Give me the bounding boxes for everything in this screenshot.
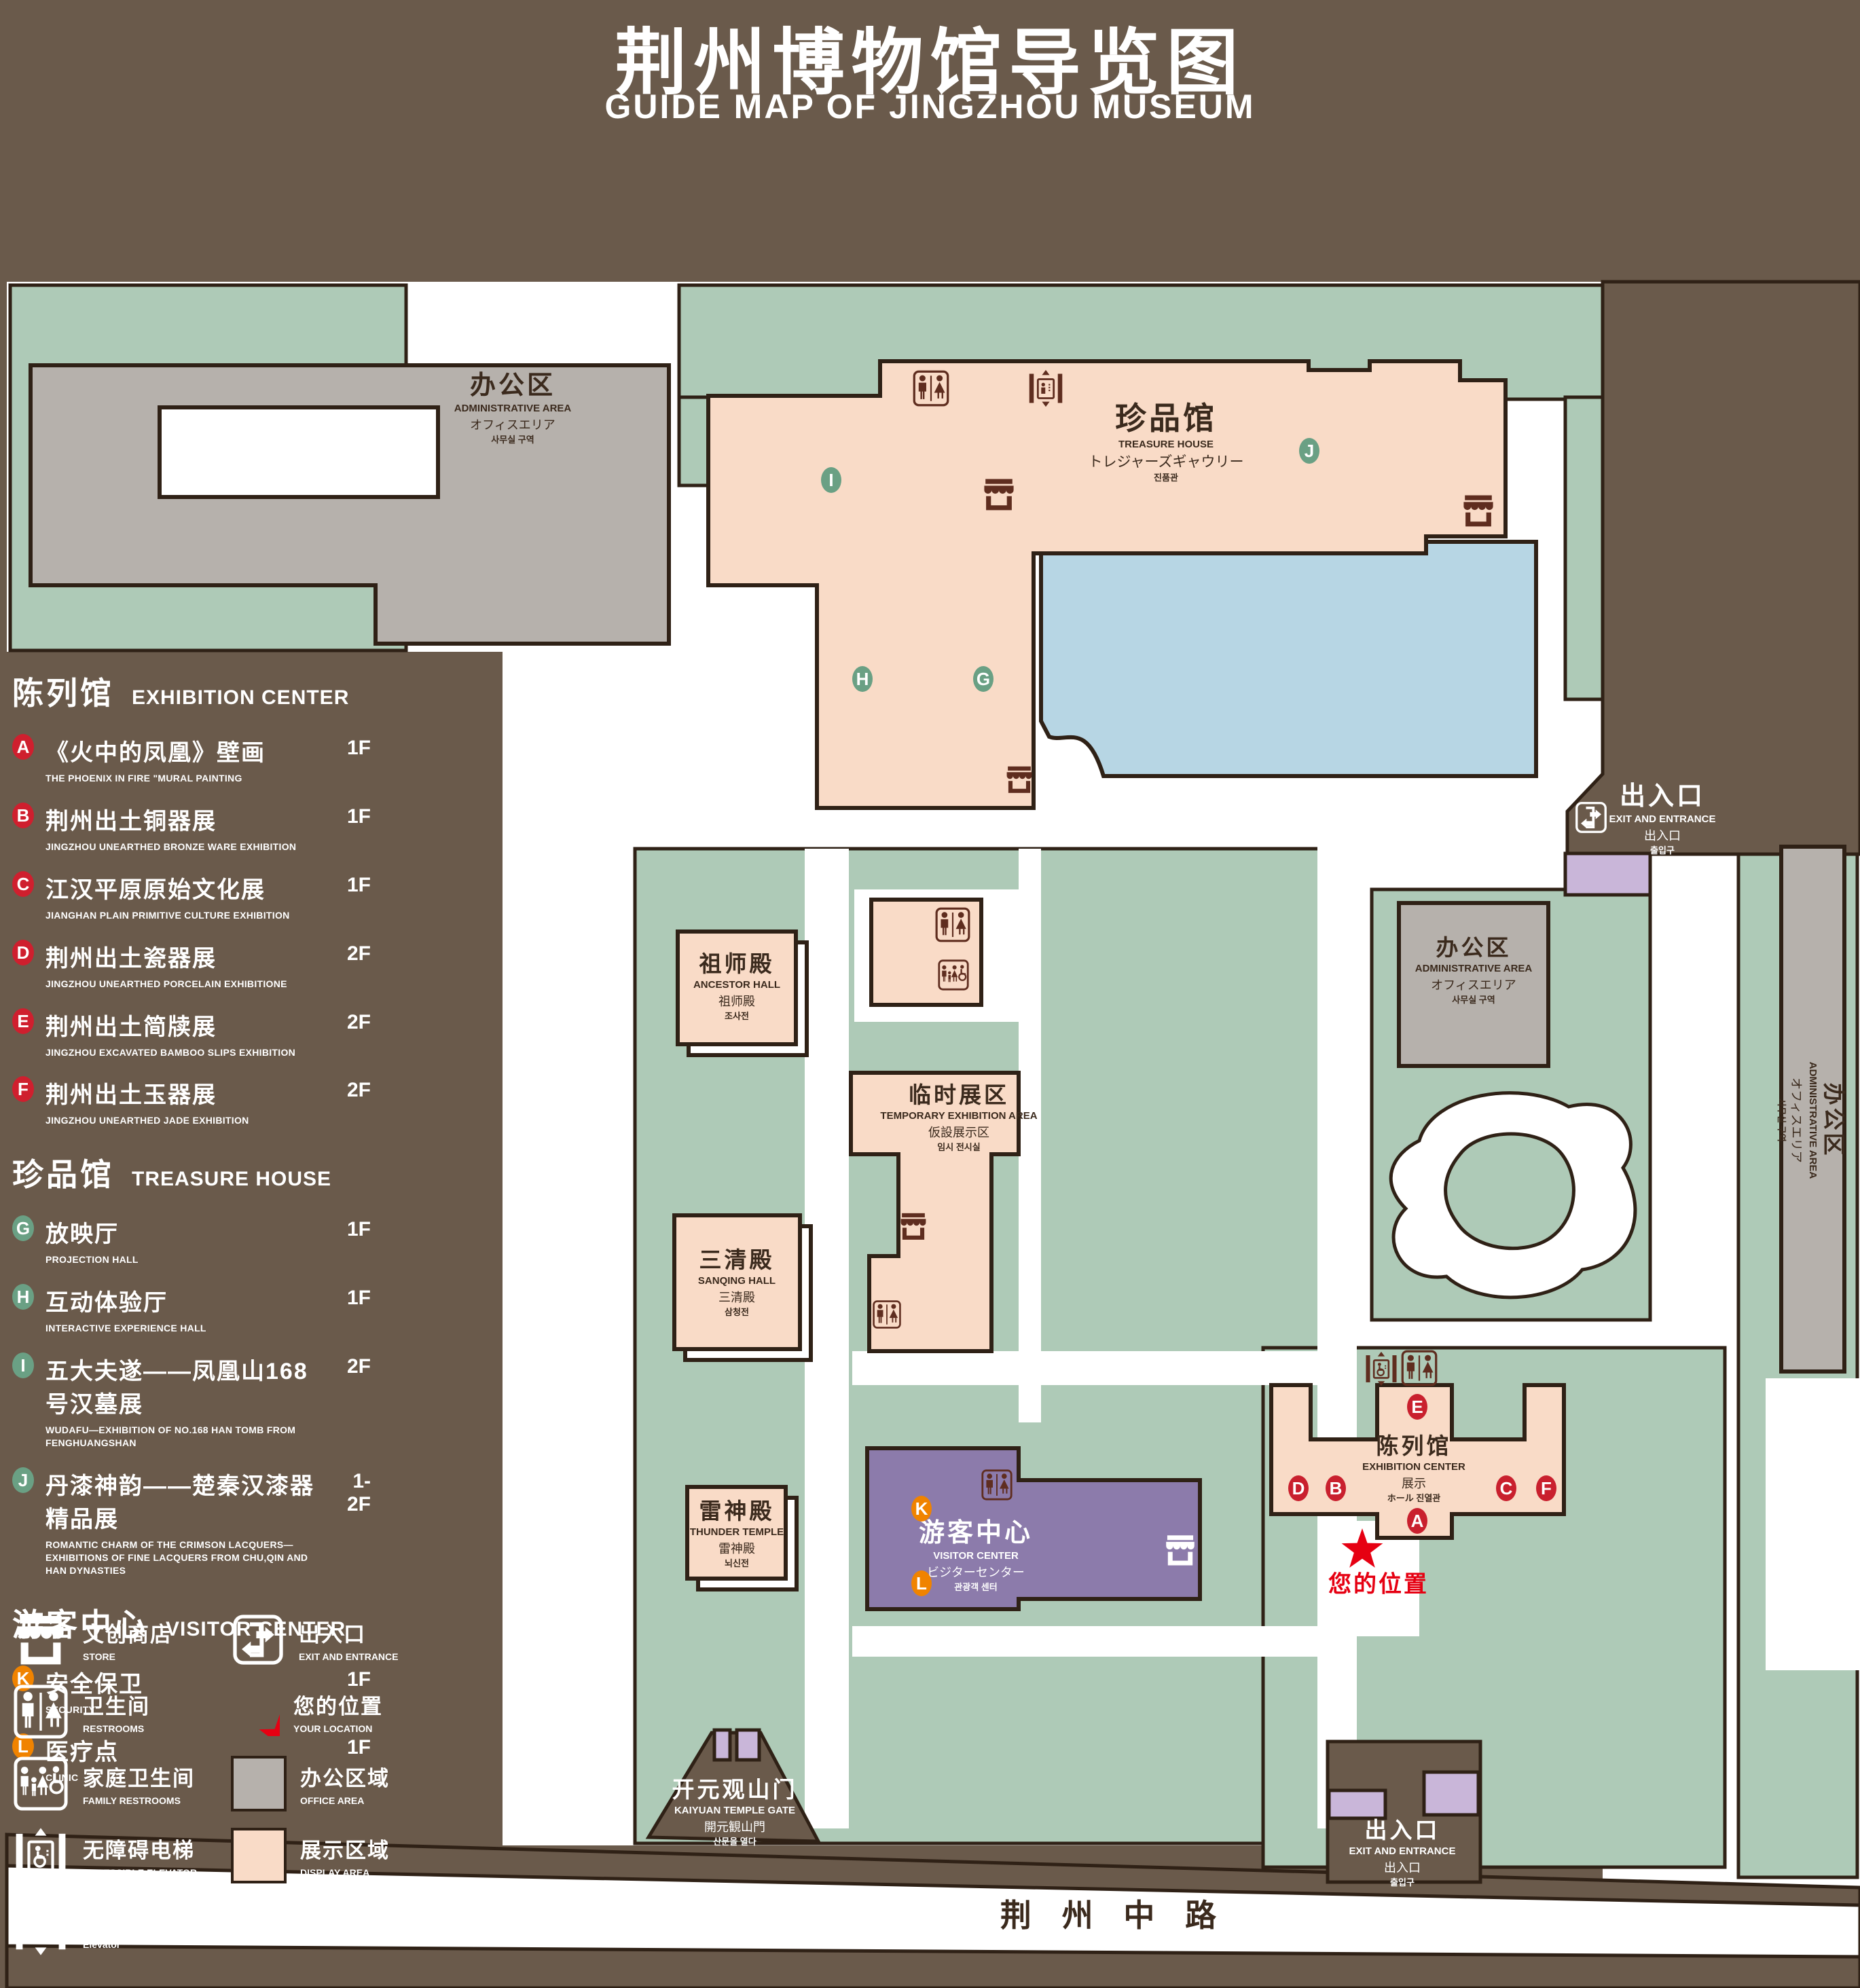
accessible-elevator-icon [12, 1827, 69, 1884]
legend-item-j: J 丹漆神韵——楚秦汉漆器精品展 ROMANTIC CHARM OF THE C… [12, 1467, 371, 1577]
symbol-zh: 出入口 [299, 1617, 399, 1648]
item-floor: 2F [331, 1076, 371, 1102]
path-visitor-south [852, 1626, 1355, 1657]
item-text: 荆州出土瓷器展 JINGZHOU UNEARTHED PORCELAIN EXH… [45, 940, 331, 991]
map-marker-d: D [1288, 1475, 1309, 1501]
label-en: EXIT AND ENTRANCE [1609, 813, 1716, 826]
item-text: 丹漆神韵——楚秦汉漆器精品展 ROMANTIC CHARM OF THE CRI… [45, 1467, 331, 1577]
pad-south-exit-left [1329, 1790, 1385, 1818]
label-en: EXIT AND ENTRANCE [1349, 1845, 1456, 1858]
label-ja: オフィスエリア [454, 418, 572, 432]
marker-badge-i: I [12, 1352, 34, 1378]
symbol-en: OFFICE AREA [300, 1795, 390, 1806]
symbol-zh: 无障碍电梯 [83, 1833, 197, 1864]
map-marker-l: L [911, 1570, 932, 1596]
label-ko: 삼청전 [698, 1306, 776, 1317]
label-en: ADMINISTRATIVE AREA [1806, 1062, 1819, 1179]
symbol-zh: 文创商店 [83, 1617, 172, 1648]
map-marker-k: K [911, 1496, 932, 1522]
symbol-zh: 办公区域 [300, 1761, 390, 1792]
item-en: JIANGHAN PLAIN PRIMITIVE CULTURE EXHIBIT… [45, 909, 331, 922]
label-south-exit: 出入口 EXIT AND ENTRANCE 出入口 출입구 [1349, 1817, 1456, 1888]
item-text: 荆州出土玉器展 JINGZHOU UNEARTHED JADE EXHIBITI… [45, 1076, 331, 1127]
label-ko: ホール 진열관 [1362, 1492, 1465, 1503]
road-label: 荆 州 中 路 [1000, 1891, 1227, 1936]
symbol-display-area: 展示区域 DISPLAY AREA [231, 1820, 406, 1892]
label-ko: 사무실 구역 [454, 434, 572, 445]
label-zh: 办公区 [454, 370, 572, 401]
symbol-en: STORE [83, 1651, 172, 1662]
your-location-label: 您的位置 [1328, 1566, 1429, 1599]
symbol-en: Elevator [83, 1939, 128, 1950]
marker-badge-f: F [12, 1076, 34, 1102]
legend-section-treasure-house: 珍品馆 TREASURE HOUSE [12, 1150, 371, 1195]
display-area-swatch [231, 1828, 287, 1883]
symbol-zh: 家庭卫生间 [83, 1761, 195, 1792]
label-ancestor-hall: 祖师殿 ANCESTOR HALL 祖师殿 조사전 [693, 951, 780, 1021]
item-floor: 1F [331, 1215, 371, 1241]
marker-badge-b: B [12, 803, 34, 828]
item-floor: 1F [331, 1284, 371, 1310]
legend-item-e: E 荆州出土简牍展 JINGZHOU EXCAVATED BAMBOO SLIP… [12, 1008, 371, 1059]
map-marker-j: J [1299, 438, 1319, 464]
item-en: JINGZHOU EXCAVATED BAMBOO SLIPS EXHIBITI… [45, 1046, 331, 1059]
label-ko: 출입구 [1609, 845, 1716, 855]
label-zh: 游客中心 [919, 1517, 1033, 1549]
symbol-exit: 出入口 EXIT AND ENTRANCE [231, 1604, 406, 1676]
admin-courtyard [160, 407, 438, 497]
lawn-treasure-west [679, 397, 710, 485]
label-ko: 관광객 센터 [919, 1581, 1033, 1592]
label-treasure-house: 珍品馆 TREASURE HOUSE トレジャーズギャウリー 진품관 [1089, 399, 1244, 483]
label-admin-northwest: 办公区 ADMINISTRATIVE AREA オフィスエリア 사무실 구역 [454, 370, 572, 445]
label-exhibition-center: 陈列馆 EXHIBITION CENTER 展示 ホール 진열관 [1362, 1433, 1465, 1503]
label-ko: 사무실 구역 [1415, 994, 1533, 1005]
label-admin-far-right: 办公区 ADMINISTRATIVE AREA オフィスエリア 사무실 구역 [1776, 1062, 1847, 1179]
symbol-accessible-elevator: 无障碍电梯 ACCESSIBLE ELEVATOR [12, 1820, 231, 1892]
item-zh: 荆州出土简牍展 [45, 1008, 331, 1042]
section-title-en: TREASURE HOUSE [132, 1168, 331, 1191]
label-zh: 临时展区 [880, 1082, 1037, 1109]
pad-northeast-exit [1565, 853, 1650, 895]
section-title-zh: 珍品馆 [12, 1150, 114, 1195]
marker-badge-c: C [12, 871, 34, 897]
path-visitor-north [852, 1351, 1317, 1385]
item-text: 《火中的凤凰》壁画 THE PHOENIX IN FIRE "MURAL PAI… [45, 734, 331, 785]
path-far-right-court [1766, 1378, 1860, 1670]
label-ko: 조사전 [693, 1010, 780, 1021]
label-ko: 사무실 구역 [1776, 1062, 1787, 1179]
office-area-swatch [231, 1756, 287, 1811]
legend-item-b: B 荆州出土铜器展 JINGZHOU UNEARTHED BRONZE WARE… [12, 803, 371, 853]
label-en: ADMINISTRATIVE AREA [454, 403, 572, 415]
label-zh: 开元观山门 [672, 1776, 798, 1803]
label-ko: 출입구 [1349, 1877, 1456, 1888]
symbol-en: FAMILY RESTROOMS [83, 1795, 195, 1806]
item-en: ROMANTIC CHARM OF THE CRIMSON LACQUERS—E… [45, 1539, 331, 1577]
legend-item-i: I 五大夫遂——凤凰山168号汉墓展 WUDAFU—EXHIBITION OF … [12, 1352, 371, 1450]
your-location-star-icon [231, 1687, 280, 1736]
label-zh: 三清殿 [698, 1247, 776, 1274]
store-icon [12, 1611, 69, 1668]
elevator-icon [12, 1899, 69, 1956]
exit-icon [231, 1613, 285, 1667]
item-zh: 《火中的凤凰》壁画 [45, 734, 331, 767]
item-zh: 荆州出土玉器展 [45, 1076, 331, 1109]
map-marker-b: B [1326, 1475, 1346, 1501]
label-ko: 임시 전시실 [880, 1141, 1037, 1152]
lawn-treasure-east [1565, 397, 1604, 699]
legend-item-a: A 《火中的凤凰》壁画 THE PHOENIX IN FIRE "MURAL P… [12, 734, 371, 785]
item-text: 荆州出土铜器展 JINGZHOU UNEARTHED BRONZE WARE E… [45, 803, 331, 853]
legend-item-d: D 荆州出土瓷器展 JINGZHOU UNEARTHED PORCELAIN E… [12, 940, 371, 991]
label-ja: オフィスエリア [1415, 978, 1533, 993]
item-en: PROJECTION HALL [45, 1253, 331, 1266]
item-zh: 荆州出土瓷器展 [45, 940, 331, 973]
label-en: VISITOR CENTER [919, 1550, 1033, 1562]
item-en: THE PHOENIX IN FIRE "MURAL PAINTING [45, 772, 331, 785]
label-ja: 出入口 [1349, 1860, 1456, 1875]
label-zh: 雷神殿 [690, 1498, 784, 1525]
label-zh: 珍品馆 [1089, 399, 1244, 437]
item-zh: 放映厅 [45, 1215, 331, 1249]
label-zh: 出入口 [1609, 781, 1716, 812]
label-en: TEMPORARY EXHIBITION AREA [880, 1110, 1037, 1122]
label-kaiyuan-gate: 开元观山门 KAIYUAN TEMPLE GATE 開元観山門 산문을 열다 [672, 1776, 798, 1847]
symbol-zh: 卫生间 [83, 1689, 150, 1720]
symbol-en: ACCESSIBLE ELEVATOR [83, 1867, 197, 1878]
symbol-restrooms: 卫生间 RESTROOMS [12, 1676, 231, 1748]
item-text: 放映厅 PROJECTION HALL [45, 1215, 331, 1266]
item-zh: 五大夫遂——凤凰山168号汉墓展 [45, 1352, 331, 1419]
map-marker-a: A [1407, 1508, 1427, 1534]
label-temporary-exhibition: 临时展区 TEMPORARY EXHIBITION AREA 仮設展示区 임시 … [880, 1082, 1037, 1152]
item-text: 五大夫遂——凤凰山168号汉墓展 WUDAFU—EXHIBITION OF NO… [45, 1352, 331, 1450]
label-ko: 진품관 [1089, 473, 1244, 483]
pad-gate-right [737, 1730, 759, 1760]
map-marker-f: F [1536, 1475, 1556, 1501]
symbol-zh: 电梯 [83, 1905, 128, 1936]
label-en: EXHIBITION CENTER [1362, 1461, 1465, 1473]
item-en: INTERACTIVE EXPERIENCE HALL [45, 1322, 331, 1335]
item-floor: 1F [331, 803, 371, 828]
label-northeast-exit: 出入口 EXIT AND ENTRANCE 出入口 출입구 [1609, 781, 1716, 855]
label-zh: 陈列馆 [1362, 1433, 1465, 1460]
label-ja: オフィスエリア [1789, 1062, 1804, 1179]
pad-south-exit-right [1424, 1772, 1478, 1815]
family-restroom-icon [12, 1755, 69, 1812]
guide-map-poster: 荆州博物馆导览图 GUIDE MAP OF JINGZHOU MUSEUM 陈列… [0, 0, 1860, 1988]
legend-item-h: H 互动体验厅 INTERACTIVE EXPERIENCE HALL 1F [12, 1284, 371, 1335]
label-ja: 仮設展示区 [880, 1125, 1037, 1140]
restroom-icon [12, 1683, 69, 1740]
symbol-elevator: 电梯 Elevator [12, 1892, 231, 1964]
symbol-family-restrooms: 家庭卫生间 FAMILY RESTROOMS [12, 1748, 231, 1820]
marker-badge-e: E [12, 1008, 34, 1034]
label-ja: ビジターセンター [919, 1565, 1033, 1580]
label-zh: 出入口 [1349, 1817, 1456, 1844]
label-ja: 雷神殿 [690, 1541, 784, 1556]
item-en: JINGZHOU UNEARTHED JADE EXHIBITION [45, 1114, 331, 1127]
label-ja: 三清殿 [698, 1290, 776, 1305]
symbol-en: DISPLAY AREA [300, 1867, 390, 1878]
label-ja: 祖师殿 [693, 994, 780, 1009]
section-title-en: EXHIBITION CENTER [132, 686, 349, 710]
label-ja: 展示 [1362, 1476, 1465, 1491]
symbol-zh: 您的位置 [293, 1689, 383, 1720]
map-marker-g: G [973, 666, 993, 692]
label-ja: 開元観山門 [672, 1820, 798, 1835]
garden-island [1446, 1134, 1574, 1249]
symbol-en: EXIT AND ENTRANCE [299, 1651, 399, 1662]
label-en: ANCESTOR HALL [693, 979, 780, 991]
item-floor: 2F [331, 1352, 371, 1378]
symbol-en: YOUR LOCATION [293, 1723, 383, 1734]
label-zh: 祖师殿 [693, 951, 780, 978]
northeast-exit-plaza [1567, 282, 1860, 854]
label-en: THUNDER TEMPLE [690, 1526, 784, 1539]
item-text: 荆州出土简牍展 JINGZHOU EXCAVATED BAMBOO SLIPS … [45, 1008, 331, 1059]
symbol-office-area: 办公区域 OFFICE AREA [231, 1748, 406, 1820]
item-text: 江汉平原原始文化展 JIANGHAN PLAIN PRIMITIVE CULTU… [45, 871, 331, 922]
label-thunder-temple: 雷神殿 THUNDER TEMPLE 雷神殿 뇌신전 [690, 1498, 784, 1568]
label-admin-east: 办公区 ADMINISTRATIVE AREA オフィスエリア 사무실 구역 [1415, 934, 1533, 1005]
marker-badge-a: A [12, 734, 34, 760]
legend-symbols: 文创商店 STORE 出入口 EXIT AND ENTRANCE 卫生间 RES… [12, 1604, 406, 1964]
label-ja: トレジャーズギャウリー [1089, 454, 1244, 471]
item-en: JINGZHOU UNEARTHED PORCELAIN EXHIBITIONE [45, 978, 331, 991]
map-marker-i: I [821, 467, 841, 493]
legend-item-f: F 荆州出土玉器展 JINGZHOU UNEARTHED JADE EXHIBI… [12, 1076, 371, 1127]
symbol-store: 文创商店 STORE [12, 1604, 231, 1676]
symbol-zh: 展示区域 [300, 1833, 390, 1864]
item-zh: 荆州出土铜器展 [45, 803, 331, 836]
marker-badge-g: G [12, 1215, 34, 1241]
label-ko: 산문을 열다 [672, 1836, 798, 1847]
item-floor: 1-2F [331, 1467, 371, 1516]
item-zh: 江汉平原原始文化展 [45, 871, 331, 904]
marker-badge-d: D [12, 940, 34, 965]
section-title-zh: 陈列馆 [12, 669, 114, 714]
pad-gate-left [714, 1730, 730, 1760]
item-zh: 互动体验厅 [45, 1284, 331, 1317]
path-vertical-east [1317, 781, 1357, 1828]
marker-badge-j: J [12, 1467, 34, 1493]
label-visitor-center: 游客中心 VISITOR CENTER ビジターセンター 관광객 센터 [919, 1517, 1033, 1592]
item-text: 互动体验厅 INTERACTIVE EXPERIENCE HALL [45, 1284, 331, 1335]
label-sanqing-hall: 三清殿 SANQING HALL 三清殿 삼청전 [698, 1247, 776, 1317]
label-zh: 办公区 [1820, 1062, 1847, 1179]
item-floor: 2F [331, 1008, 371, 1034]
pond [1041, 542, 1536, 776]
label-en: KAIYUAN TEMPLE GATE [672, 1805, 798, 1817]
item-en: JINGZHOU UNEARTHED BRONZE WARE EXHIBITIO… [45, 841, 331, 853]
label-zh: 办公区 [1415, 934, 1533, 961]
legend-item-c: C 江汉平原原始文化展 JIANGHAN PLAIN PRIMITIVE CUL… [12, 871, 371, 922]
map-marker-c: C [1496, 1475, 1516, 1501]
item-floor: 1F [331, 734, 371, 760]
label-ko: 뇌신전 [690, 1558, 784, 1568]
label-en: ADMINISTRATIVE AREA [1415, 963, 1533, 975]
item-zh: 丹漆神韵——楚秦汉漆器精品展 [45, 1467, 331, 1534]
item-floor: 2F [331, 940, 371, 965]
map-marker-h: H [852, 666, 873, 692]
legend-item-g: G 放映厅 PROJECTION HALL 1F [12, 1215, 371, 1266]
legend-section-exhibition-center: 陈列馆 EXHIBITION CENTER [12, 669, 371, 714]
item-floor: 1F [331, 871, 371, 897]
symbol-your-location: 您的位置 YOUR LOCATION [231, 1676, 406, 1748]
item-en: WUDAFU—EXHIBITION OF NO.168 HAN TOMB FRO… [45, 1424, 331, 1450]
map-marker-e: E [1407, 1394, 1427, 1420]
label-en: SANQING HALL [698, 1275, 776, 1287]
marker-badge-h: H [12, 1284, 34, 1310]
page-subtitle: GUIDE MAP OF JINGZHOU MUSEUM [0, 87, 1860, 126]
label-ja: 出入口 [1609, 828, 1716, 843]
label-en: TREASURE HOUSE [1089, 439, 1244, 451]
symbol-en: RESTROOMS [83, 1723, 150, 1734]
